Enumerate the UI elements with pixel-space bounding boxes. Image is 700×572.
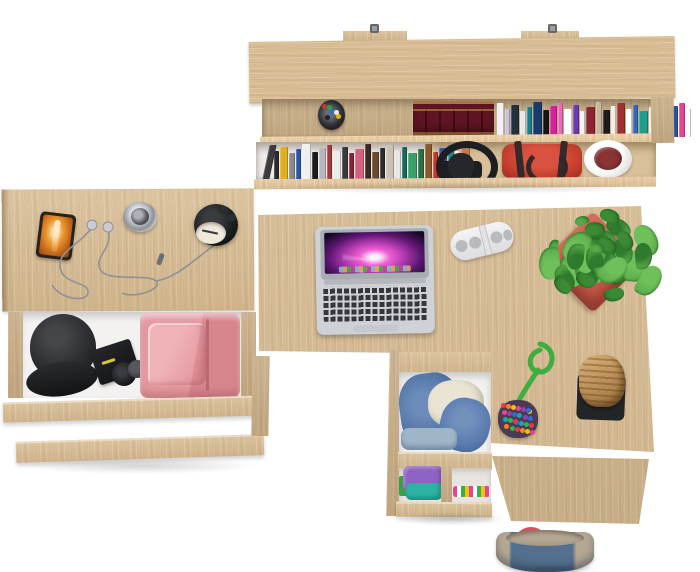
- unit-back-edge: [399, 352, 491, 374]
- silver-clock: [123, 202, 157, 232]
- floor-shadow: [256, 182, 656, 194]
- floor-shadow: [396, 512, 506, 526]
- laptop: [315, 225, 435, 335]
- pot-plant: [594, 147, 622, 170]
- book-spine: [596, 102, 602, 137]
- laptop-trackpad: [353, 325, 399, 333]
- wall-bracket-icon: [370, 24, 379, 33]
- book-spine: [312, 152, 318, 179]
- shelf-side-panel: [651, 97, 675, 143]
- book-spine: [408, 153, 417, 179]
- book-spine: [611, 106, 616, 137]
- pompom-dot: [526, 408, 531, 413]
- silver-clock-center: [131, 208, 149, 225]
- book-row-top: [497, 101, 661, 137]
- book-spine: [355, 149, 364, 179]
- book-spine: [543, 110, 549, 137]
- alarm-clock-button: [218, 206, 227, 213]
- book-spine: [679, 103, 685, 137]
- book-spine: [274, 151, 279, 179]
- book-spine: [505, 109, 510, 137]
- laptop-wallpaper: [324, 231, 425, 274]
- socket-hole: [454, 239, 469, 254]
- shelf-top-board: [249, 36, 676, 104]
- pompom-dot: [517, 413, 522, 418]
- book-spine: [527, 107, 532, 137]
- book-spine: [533, 102, 542, 137]
- pompom-ball: [498, 400, 538, 438]
- floor-shadow: [500, 564, 600, 572]
- plant-leaves: [540, 196, 650, 304]
- furniture-scene: [0, 0, 700, 572]
- wall-bracket-icon: [548, 24, 557, 33]
- book-spine: [497, 103, 504, 137]
- book-spine: [586, 107, 595, 137]
- socket-hole: [502, 229, 513, 242]
- book-spine: [402, 147, 407, 179]
- laptop-keyboard: [323, 285, 428, 322]
- pompom-dot: [530, 430, 535, 435]
- alarm-clock-button: [228, 214, 236, 221]
- pompom-dot: [513, 419, 518, 424]
- laptop-screen: [320, 228, 429, 280]
- light-blue-garment: [401, 428, 457, 450]
- book-spine: [386, 145, 394, 179]
- pink-pants: [140, 313, 240, 398]
- book-spine: [558, 103, 563, 137]
- laptop-dock: [339, 265, 411, 272]
- book-spine: [289, 153, 295, 179]
- pompom-dot: [504, 424, 509, 429]
- socket-hole: [489, 230, 504, 245]
- pen-tip: [327, 105, 332, 110]
- headphone-blob: [448, 153, 474, 179]
- red-handbag: [502, 141, 582, 178]
- book-spine: [686, 109, 691, 137]
- book-spine: [365, 144, 371, 179]
- folded-teal-shirt: [406, 483, 442, 500]
- book-spine: [520, 111, 526, 137]
- side-table-side-panel: [251, 356, 269, 436]
- drawer-side-rail: [8, 312, 23, 398]
- shelf-plant-pot: [584, 140, 632, 178]
- striped-garment: [453, 486, 490, 497]
- pompom-dot: [529, 423, 534, 428]
- pompom-dot: [528, 416, 533, 421]
- pants-fold: [148, 323, 206, 385]
- succulent-leaf: [599, 207, 621, 224]
- book-spine: [349, 153, 354, 179]
- book-spine: [372, 152, 379, 179]
- book-spine: [319, 148, 326, 179]
- pen-cup: [318, 100, 345, 130]
- black-cap: [26, 314, 100, 396]
- pen-tip: [325, 115, 330, 120]
- book-spine: [573, 105, 579, 137]
- headphones-icon: [432, 139, 490, 183]
- book-spine: [617, 103, 625, 137]
- pen-tip: [334, 110, 339, 115]
- book-spine: [633, 105, 638, 137]
- alarm-clock: [192, 204, 238, 248]
- book-spine: [280, 147, 288, 179]
- book-spine: [425, 144, 432, 179]
- book-spine: [342, 147, 348, 179]
- book-spine: [302, 144, 311, 179]
- drawer-front-edge: [3, 395, 263, 422]
- book-spine: [333, 151, 341, 179]
- bag-opening: [506, 530, 584, 546]
- book-row-bottom: [266, 143, 430, 179]
- succulent-leaf: [603, 286, 626, 304]
- leather-book-set: [413, 101, 494, 137]
- book-spine: [564, 109, 572, 137]
- floor-shadow: [20, 458, 260, 474]
- book-spine: [327, 145, 332, 179]
- book-spine: [296, 149, 301, 179]
- book-spine: [380, 148, 385, 179]
- book-spine: [418, 149, 424, 179]
- stool-cork-top: [579, 355, 625, 407]
- shelf-divider: [441, 466, 452, 504]
- book-spine: [395, 151, 401, 179]
- book-spine: [511, 105, 519, 137]
- book-spine: [550, 106, 557, 137]
- succulent-leaf: [590, 243, 604, 252]
- pants-seam: [206, 319, 209, 391]
